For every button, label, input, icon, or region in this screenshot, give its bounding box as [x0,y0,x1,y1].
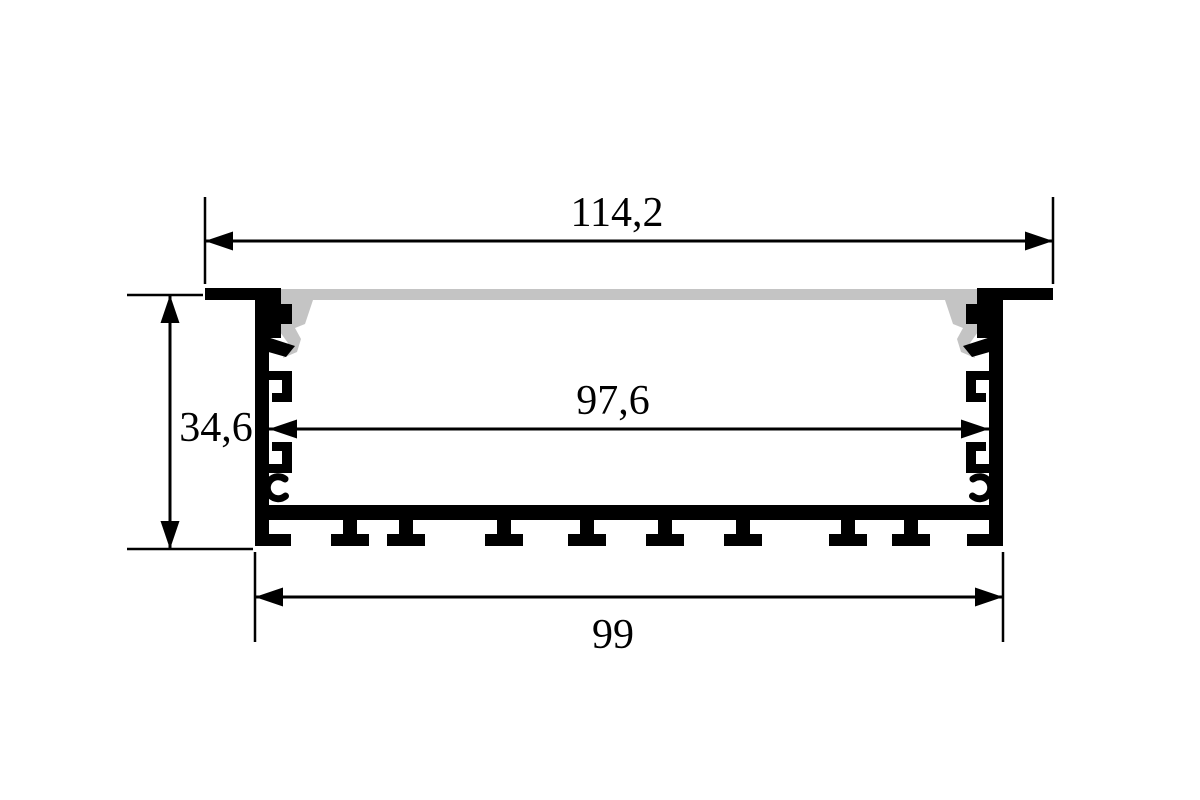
t-fin [829,520,867,546]
t-fin [485,520,523,546]
arrowhead-right [975,588,1003,607]
dimension-label-inner-width: 97,6 [576,378,650,424]
arrowhead-top [161,295,180,323]
dimension-label-bottom-width: 99 [592,612,634,658]
t-fin [387,520,425,546]
t-fin [724,520,762,546]
mount-hook-lower-left [269,442,292,473]
screw-boss-right [973,477,991,499]
arrowhead-left [205,232,233,251]
mount-hook-upper-right [966,371,989,402]
dimension-height: 34,6 [127,295,253,549]
profile-cross-section-drawing: 114,2 97,6 34,6 99 [0,0,1200,800]
arrowhead-right [1025,232,1053,251]
base-plate [255,505,1003,520]
arrowhead-bottom [161,521,180,549]
t-fin [331,520,369,546]
mount-hook-lower-right [966,442,989,473]
edge-fin-foot-right [967,534,1003,546]
diffuser-lens-bar [276,289,982,300]
arrowhead-left [255,588,283,607]
side-wall-left [255,300,269,505]
t-fin [892,520,930,546]
t-fin [646,520,684,546]
diffuser-lens [276,289,982,358]
edge-fin-foot-left [255,534,291,546]
dimension-bottom-width: 99 [255,552,1003,658]
lens-catch-right [966,304,977,324]
dimension-label-height: 34,6 [179,405,253,451]
dimension-inner-width: 97,6 [269,378,989,439]
t-fin [568,520,606,546]
mount-hook-upper-left [269,371,292,402]
drawing-canvas: 114,2 97,6 34,6 99 [0,0,1200,800]
screw-boss-left [267,477,285,499]
side-wall-right [989,300,1003,505]
arrowhead-right [961,420,989,439]
base-fins [331,520,930,546]
arrowhead-left [269,420,297,439]
dimension-top-width: 114,2 [205,190,1053,284]
dimension-label-top-width: 114,2 [571,190,664,236]
lens-catch-left [281,304,292,324]
